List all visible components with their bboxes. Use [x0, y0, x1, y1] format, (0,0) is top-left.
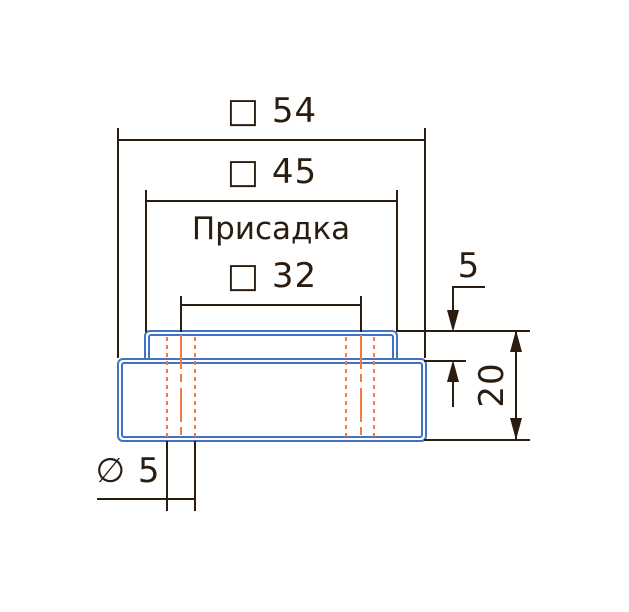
dim-label-outer-width: □ 54	[227, 94, 317, 128]
part-body-outline	[117, 358, 427, 442]
dim-tail-step-height-bottom	[452, 382, 454, 407]
dim-arrow-step-height-up	[447, 360, 459, 382]
dim-label-total-height: 20	[475, 362, 509, 407]
drawing-note-label: Присадка	[192, 214, 350, 245]
ext-line-step-width-right	[396, 190, 398, 332]
ext-line-outer-width-right	[424, 128, 426, 358]
ext-line-hole-spacing-right	[360, 296, 362, 332]
left-hole-hidden-line-left	[166, 337, 168, 437]
dim-label-hole-dia: ∅ 5	[95, 454, 160, 488]
ext-line-hole-dia-right	[194, 441, 196, 511]
ext-line-hole-dia-left	[166, 441, 168, 511]
ext-line-outer-width-left	[117, 128, 119, 358]
dim-arrow-total-height-bottom	[510, 418, 522, 440]
dim-line-outer-width	[118, 139, 426, 141]
dim-label-hole-spacing: □ 32	[227, 259, 317, 293]
dim-label-step-width: □ 45	[227, 155, 317, 189]
technical-drawing-canvas: □ 54 □ 45 Присадка □ 32 5 20 ∅ 5	[0, 0, 629, 612]
left-hole-centerline	[180, 335, 182, 441]
left-hole-hidden-line-right	[194, 337, 196, 437]
ext-line-step-width-left	[145, 190, 147, 332]
dim-leader-step-height	[452, 286, 485, 288]
dim-arrow-step-height-down	[447, 310, 459, 332]
dim-line-hole-spacing	[181, 304, 362, 306]
right-hole-hidden-line-right	[373, 337, 375, 437]
right-hole-centerline	[360, 335, 362, 441]
right-hole-hidden-line-left	[345, 337, 347, 437]
dim-tail-step-height-top	[452, 286, 454, 311]
dim-leader-hole-dia	[97, 498, 196, 500]
ext-line-body-top-right	[424, 360, 466, 362]
part-top-step-inner-line	[148, 334, 394, 361]
dim-arrow-total-height-top	[510, 330, 522, 352]
dim-label-step-height: 5	[458, 249, 481, 283]
ext-line-hole-spacing-left	[180, 296, 182, 332]
dim-line-step-width	[146, 200, 398, 202]
